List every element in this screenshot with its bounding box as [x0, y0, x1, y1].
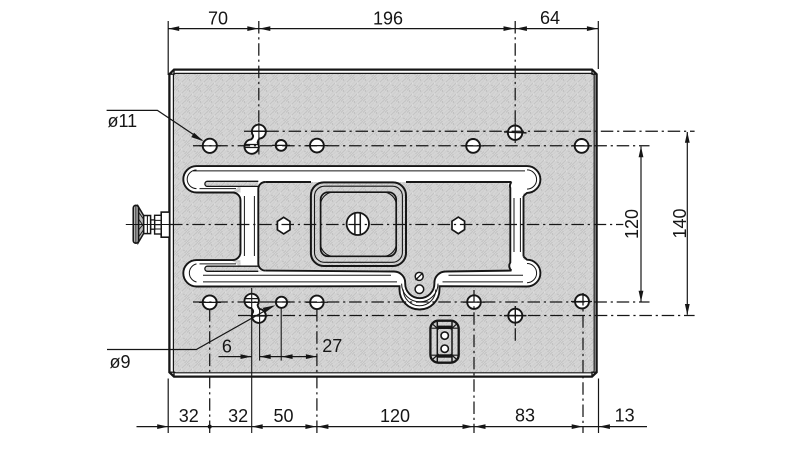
svg-text:140: 140	[670, 208, 690, 238]
svg-text:83: 83	[515, 406, 535, 426]
svg-text:120: 120	[380, 406, 410, 426]
svg-text:120: 120	[622, 209, 642, 239]
svg-text:27: 27	[322, 336, 342, 356]
svg-text:32: 32	[179, 406, 199, 426]
svg-text:13: 13	[615, 406, 635, 426]
svg-text:ø9: ø9	[109, 352, 130, 372]
svg-text:ø11: ø11	[107, 111, 137, 131]
svg-text:32: 32	[228, 406, 248, 426]
svg-text:70: 70	[208, 8, 228, 28]
svg-text:50: 50	[273, 406, 293, 426]
svg-text:196: 196	[373, 8, 403, 28]
svg-text:6: 6	[222, 336, 232, 356]
svg-text:64: 64	[540, 8, 560, 28]
